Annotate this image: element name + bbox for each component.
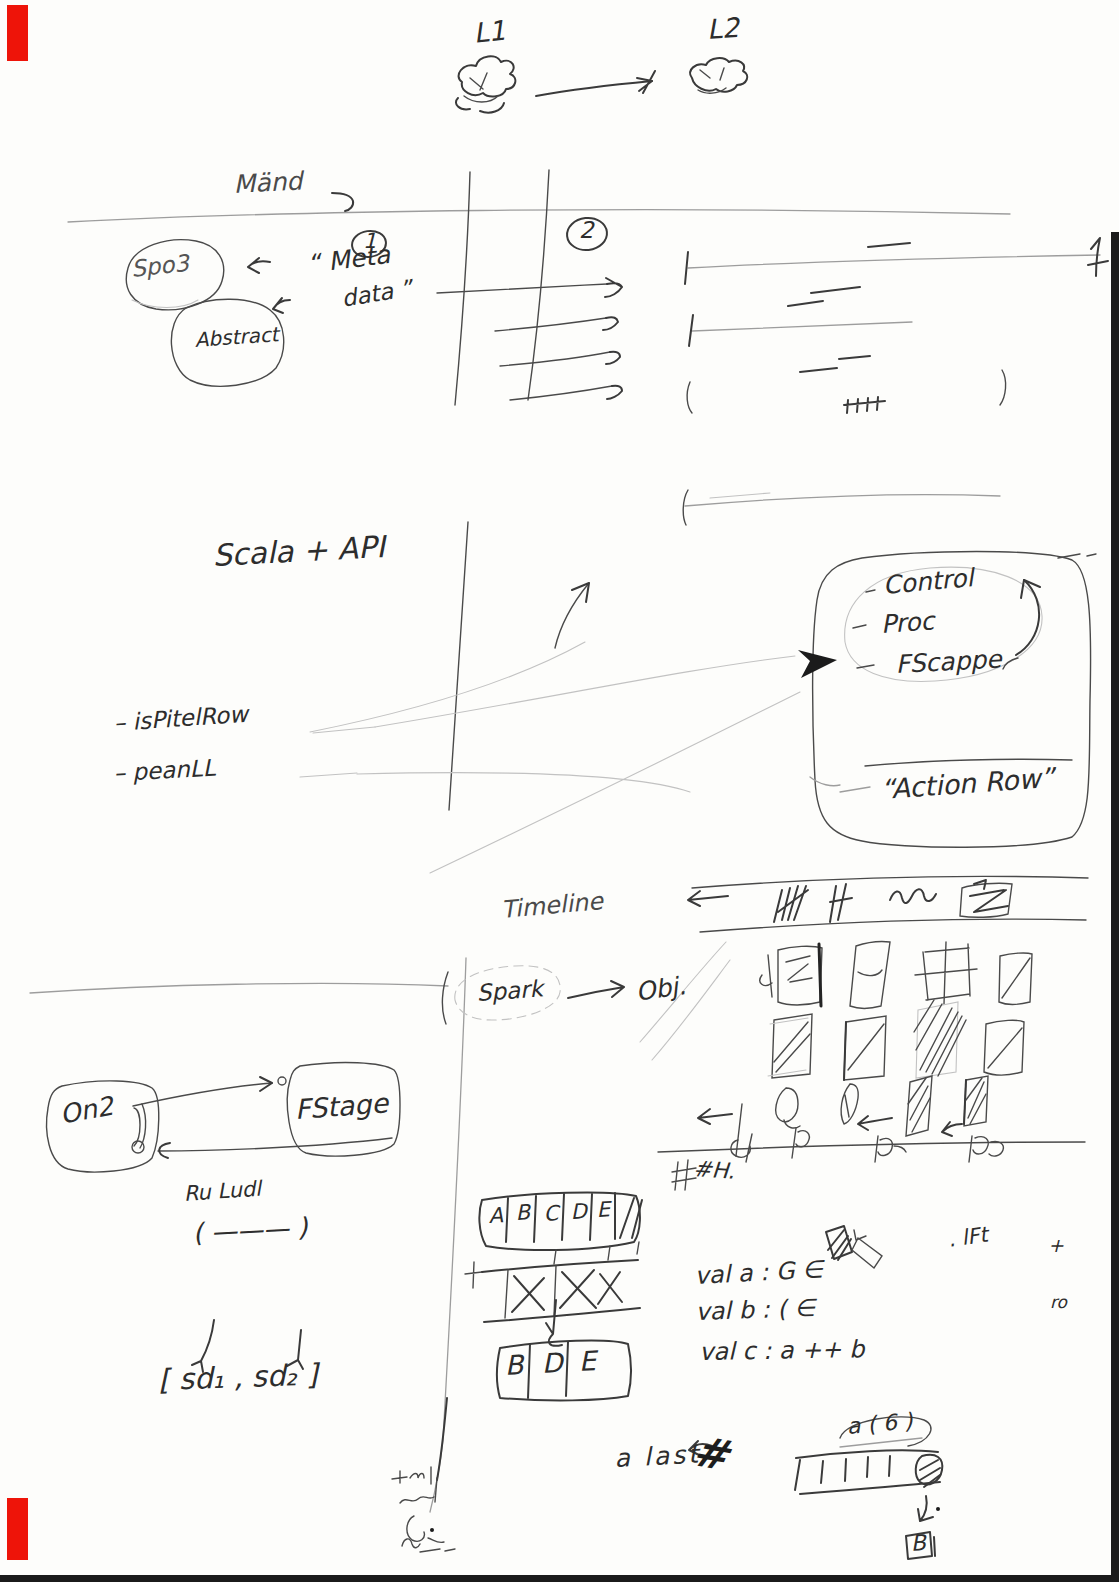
- spark-ellipse-label: Spo3: [130, 252, 190, 281]
- vertical-dividers: [430, 170, 549, 1512]
- hash-h-mark: #H.: [692, 1158, 735, 1183]
- table-header-d: D: [570, 1201, 587, 1223]
- cloud-left: [456, 56, 515, 112]
- a-last-label: a last: [614, 1441, 702, 1470]
- obj-target-label: Obj.: [634, 973, 687, 1005]
- action-row-box: [798, 552, 1096, 848]
- val-line-c: val c : a ++ b: [699, 1337, 865, 1364]
- fstage-box-label: FStage: [294, 1090, 389, 1123]
- table-result-b: B: [504, 1351, 524, 1379]
- grid-row-bottom: [768, 1000, 1024, 1136]
- flow-arrow-top: [536, 71, 655, 96]
- faint-connectors: [300, 656, 800, 873]
- step-2-label: 2: [579, 219, 594, 242]
- cloud-left-label: L1: [472, 17, 507, 47]
- fs-note: Ru Ludl: [183, 1179, 262, 1205]
- action-box-item-3: FScappe: [895, 646, 1002, 677]
- table-result-d: D: [541, 1349, 563, 1377]
- scala-title: Scala + API: [212, 532, 386, 571]
- section-heading: Mänd: [233, 168, 303, 197]
- spark-source-label: Spark: [476, 977, 544, 1005]
- fs-pair-note: [ sd₁ , sd₂ ]: [158, 1360, 318, 1395]
- b-box-label: B: [910, 1532, 927, 1555]
- ref-mark: . lFt: [947, 1225, 989, 1251]
- red-mark-bottom-left: [7, 1498, 28, 1560]
- ro-mark: ro: [1050, 1294, 1067, 1311]
- table-result-e: E: [578, 1347, 596, 1375]
- table-header-b: B: [515, 1202, 531, 1224]
- cloud-right-label: L2: [706, 14, 740, 43]
- val-line-a: val a : G ∈: [694, 1257, 823, 1288]
- scanned-sketch-page: L1 L2 Mänd Spo3 Abstract “ Meta data ” 1…: [0, 0, 1119, 1582]
- meta-flow-arrows: [437, 278, 622, 400]
- ruled-lines: [683, 238, 1108, 525]
- a6-label: a ( 6 ): [846, 1410, 913, 1438]
- plus-mark: +: [1048, 1236, 1064, 1255]
- fs-paren-note: ( ——— ): [192, 1214, 308, 1246]
- meta-left-arrows: [248, 258, 290, 313]
- red-mark-top-left: [7, 5, 28, 61]
- scan-edge-right: [1111, 232, 1119, 1582]
- table-header-c: C: [543, 1203, 559, 1225]
- table-header-a: A: [488, 1205, 503, 1227]
- heading-underline: [68, 193, 1010, 222]
- timeline-band: [688, 876, 1088, 932]
- a-last-strike: #: [690, 1430, 732, 1477]
- scala-arrow: [310, 583, 589, 732]
- val-line-b: val b : ( ∈: [695, 1296, 815, 1324]
- scan-edge-bottom: [0, 1575, 1119, 1582]
- abstract-blob-label: Abstract: [194, 324, 279, 350]
- cloud-right: [690, 58, 747, 93]
- step-1-label: 1: [363, 231, 376, 252]
- action-box-item-1: Control: [882, 565, 974, 598]
- bottom-centre-squiggles: [392, 1467, 455, 1552]
- grid-row-top: [760, 942, 1032, 1009]
- scala-bullet-2: – peanLL: [113, 757, 216, 785]
- table-header-e: E: [596, 1199, 610, 1221]
- action-box-item-2: Proc: [880, 608, 935, 637]
